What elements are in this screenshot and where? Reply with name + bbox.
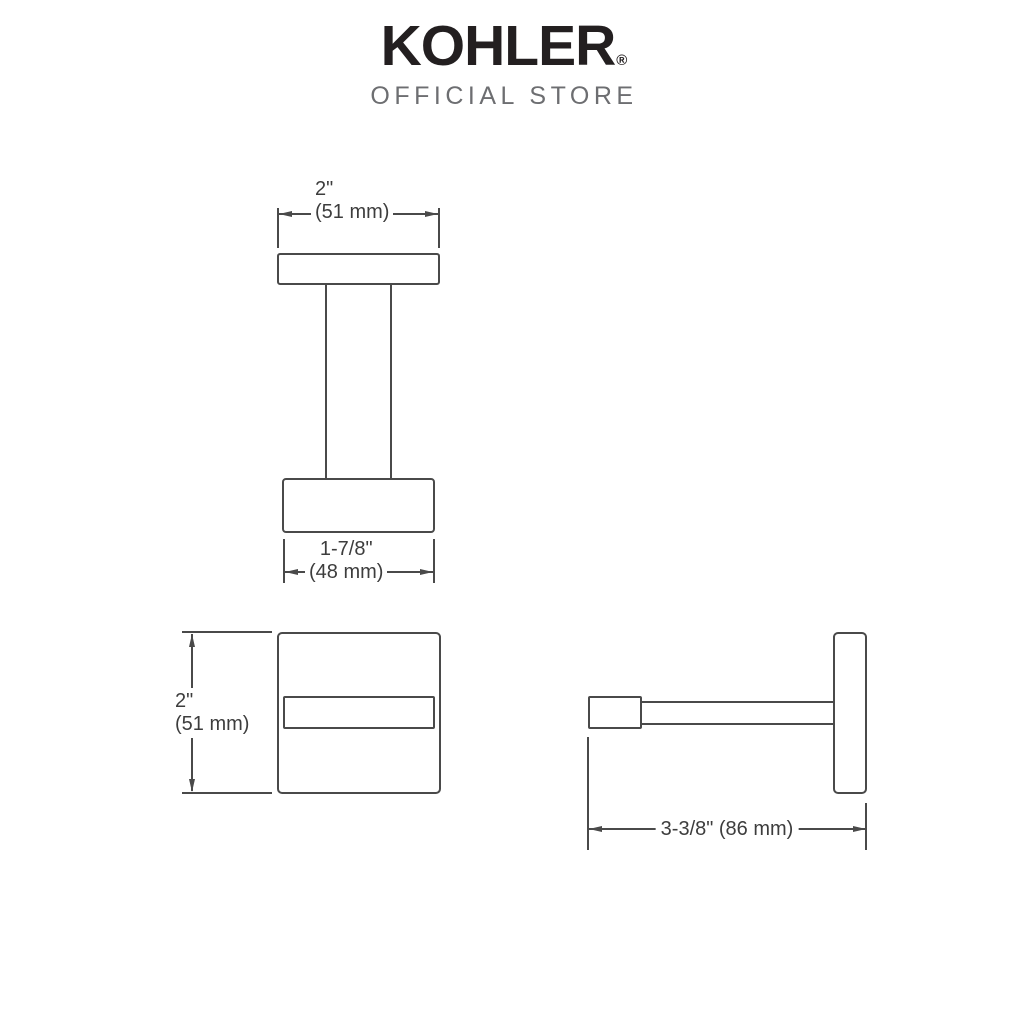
dim-arrow-left-icon <box>279 211 292 217</box>
registered-trademark-icon: ® <box>616 52 627 69</box>
side-hook-tip <box>588 696 642 729</box>
dim-inches: 1-7/8" <box>309 538 383 561</box>
brand-header: KOHLER® OFFICIAL STORE <box>370 18 637 109</box>
dim-arrow-right-icon <box>420 569 433 575</box>
dim-arrow-down-icon <box>189 779 195 792</box>
dim-arrow-right-icon <box>853 826 866 832</box>
elevation-post <box>325 284 392 479</box>
dim-label-depth: 3-3/8" (86 mm) <box>656 817 799 841</box>
kohler-logo: KOHLER® <box>370 18 637 75</box>
side-arm <box>640 701 834 725</box>
dim-arrow-right-icon <box>425 211 438 217</box>
dim-arrow-up-icon <box>189 634 195 647</box>
front-hook-face <box>283 696 435 729</box>
dim-inches: 2" <box>175 690 249 713</box>
dim-inches: 2" <box>315 178 389 201</box>
elevation-top-plate <box>277 253 440 285</box>
extension-line <box>182 631 272 633</box>
dim-label-height: 2" (51 mm) <box>171 688 253 738</box>
dim-mm: (48 mm) <box>309 561 383 584</box>
dim-arrow-left-icon <box>285 569 298 575</box>
elevation-hook-body <box>282 478 435 533</box>
extension-line <box>433 539 435 583</box>
dim-label-bottom-width: 1-7/8" (48 mm) <box>305 536 387 586</box>
extension-line <box>587 737 589 850</box>
product-dimension-sheet: KOHLER® OFFICIAL STORE 2" (51 mm) 1-7/8"… <box>0 0 1024 1024</box>
extension-line <box>438 208 440 248</box>
extension-line <box>283 539 285 583</box>
dim-mm: (51 mm) <box>315 201 389 224</box>
official-store-subtitle: OFFICIAL STORE <box>370 84 637 109</box>
side-wall-plate <box>833 632 867 794</box>
dim-arrow-left-icon <box>589 826 602 832</box>
extension-line <box>182 792 272 794</box>
dim-label-top-width: 2" (51 mm) <box>311 176 393 226</box>
dim-mm: (51 mm) <box>175 713 249 736</box>
kohler-logo-text: KOHLER <box>381 14 616 78</box>
